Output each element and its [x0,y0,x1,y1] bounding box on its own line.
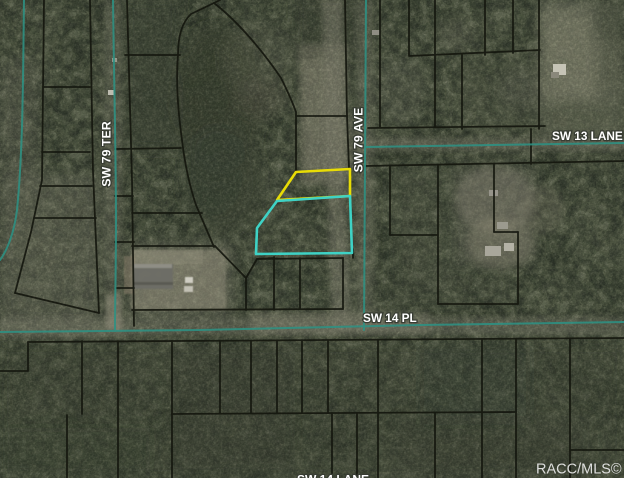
svg-text:RACC/MLS©: RACC/MLS© [536,462,622,478]
svg-text:SW 14 PL: SW 14 PL [363,311,417,325]
svg-text:SW 14 LANE: SW 14 LANE [297,473,369,478]
svg-text:SW 79 TER: SW 79 TER [99,121,113,186]
svg-text:SW 79 AVE: SW 79 AVE [351,108,365,173]
svg-text:SW 13 LANE: SW 13 LANE [552,129,623,143]
